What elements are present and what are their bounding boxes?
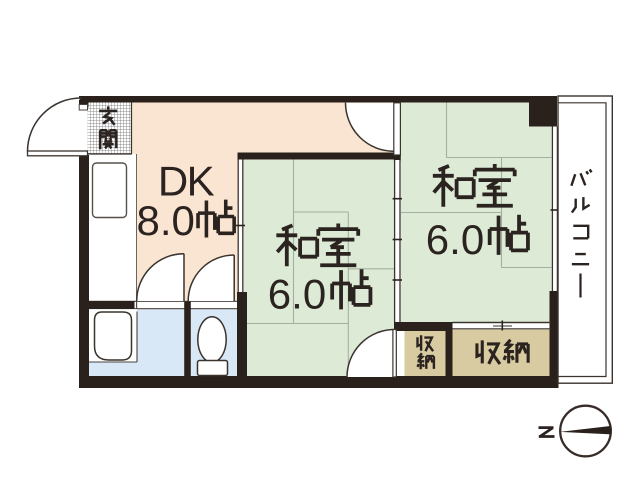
svg-text:6.0: 6.0 (426, 216, 484, 263)
svg-text:6.0: 6.0 (268, 271, 326, 318)
svg-text:8.0: 8.0 (137, 197, 195, 244)
